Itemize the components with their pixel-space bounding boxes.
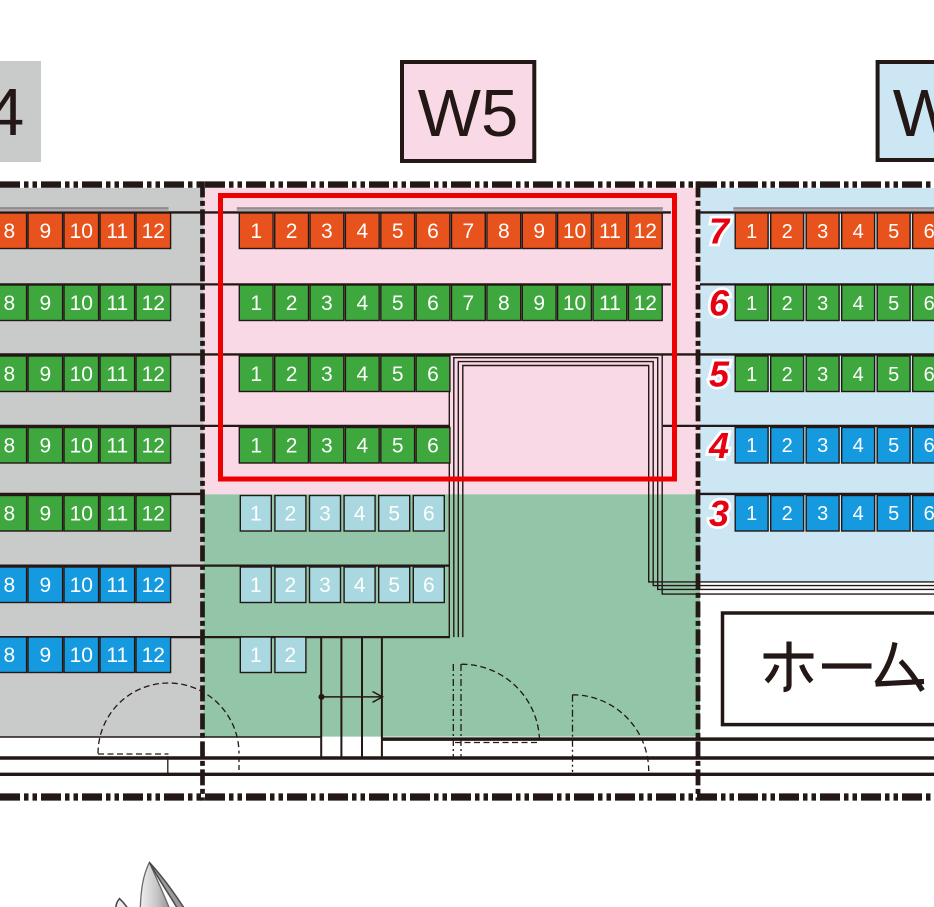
svg-text:11: 11 [106,503,128,526]
svg-text:1: 1 [746,364,757,386]
svg-text:11: 11 [106,644,128,667]
svg-text:8: 8 [3,220,15,243]
svg-text:2: 2 [782,293,793,315]
svg-text:3: 3 [817,364,828,386]
svg-text:2: 2 [782,221,793,243]
svg-text:1: 1 [250,363,262,386]
svg-text:11: 11 [599,220,621,243]
svg-text:12: 12 [634,292,657,315]
svg-text:6: 6 [427,435,439,458]
svg-text:8: 8 [3,435,15,458]
svg-text:11: 11 [106,292,128,315]
svg-text:1: 1 [250,574,262,597]
svg-text:11: 11 [106,363,128,386]
svg-text:12: 12 [142,574,165,597]
svg-text:4: 4 [354,503,366,526]
svg-text:11: 11 [106,220,128,243]
svg-text:5: 5 [388,503,400,526]
svg-text:10: 10 [70,644,93,667]
svg-text:4: 4 [853,364,864,386]
svg-text:W5: W5 [418,76,519,151]
svg-text:5: 5 [392,220,404,243]
svg-text:6: 6 [924,364,934,386]
svg-text:6: 6 [423,574,435,597]
svg-text:9: 9 [39,503,51,526]
svg-text:6: 6 [709,283,730,324]
svg-text:1: 1 [746,221,757,243]
svg-text:2: 2 [782,435,793,457]
svg-text:11: 11 [106,435,128,458]
svg-text:4: 4 [356,363,368,386]
svg-text:9: 9 [39,644,51,667]
svg-text:4: 4 [356,220,368,243]
svg-text:6: 6 [427,363,439,386]
svg-text:6: 6 [427,292,439,315]
svg-text:5: 5 [888,293,899,315]
svg-text:12: 12 [142,644,165,667]
svg-text:1: 1 [250,644,262,667]
svg-text:4: 4 [354,574,366,597]
svg-text:2: 2 [782,364,793,386]
svg-text:7: 7 [709,211,731,252]
svg-text:3: 3 [817,503,828,525]
svg-text:8: 8 [3,503,15,526]
svg-text:3: 3 [321,435,333,458]
svg-text:4: 4 [853,435,864,457]
svg-text:10: 10 [70,503,93,526]
svg-text:10: 10 [70,292,93,315]
svg-text:3: 3 [321,220,333,243]
svg-text:2: 2 [286,435,298,458]
svg-text:12: 12 [142,363,165,386]
svg-text:12: 12 [142,435,165,458]
svg-text:4: 4 [853,503,864,525]
svg-text:5: 5 [888,435,899,457]
svg-text:W4: W4 [0,75,24,150]
svg-text:3: 3 [319,574,331,597]
svg-text:1: 1 [250,220,262,243]
svg-text:3: 3 [319,503,331,526]
svg-text:6: 6 [924,293,934,315]
svg-text:2: 2 [285,574,297,597]
svg-text:8: 8 [498,292,510,315]
svg-text:5: 5 [709,354,730,395]
svg-text:8: 8 [498,220,510,243]
svg-text:9: 9 [533,220,545,243]
svg-text:3: 3 [817,221,828,243]
svg-text:6: 6 [924,221,934,243]
svg-text:5: 5 [888,503,899,525]
svg-text:7: 7 [463,220,475,243]
svg-text:3: 3 [709,493,729,534]
svg-text:4: 4 [356,292,368,315]
svg-text:2: 2 [285,503,297,526]
svg-text:5: 5 [392,363,404,386]
svg-text:10: 10 [70,435,93,458]
svg-text:W6: W6 [893,76,934,151]
svg-text:1: 1 [250,292,262,315]
svg-text:12: 12 [142,220,165,243]
svg-text:4: 4 [853,221,864,243]
svg-text:12: 12 [634,220,657,243]
svg-text:1: 1 [250,435,262,458]
svg-text:10: 10 [563,292,586,315]
svg-text:12: 12 [142,503,165,526]
svg-text:5: 5 [392,292,404,315]
svg-text:4: 4 [853,293,864,315]
svg-text:9: 9 [39,435,51,458]
svg-text:3: 3 [817,293,828,315]
svg-text:10: 10 [70,574,93,597]
svg-text:2: 2 [286,220,298,243]
svg-text:4: 4 [356,435,368,458]
svg-text:3: 3 [321,292,333,315]
svg-text:5: 5 [392,435,404,458]
svg-text:7: 7 [463,292,475,315]
svg-text:9: 9 [533,292,545,315]
svg-text:2: 2 [286,292,298,315]
svg-text:10: 10 [70,220,93,243]
svg-text:1: 1 [746,293,757,315]
svg-text:3: 3 [817,435,828,457]
svg-text:2: 2 [285,644,297,667]
svg-text:9: 9 [39,574,51,597]
svg-text:8: 8 [3,292,15,315]
svg-text:6: 6 [427,220,439,243]
svg-text:10: 10 [563,220,586,243]
svg-text:12: 12 [142,292,165,315]
svg-text:5: 5 [888,364,899,386]
svg-text:9: 9 [39,220,51,243]
svg-text:1: 1 [746,435,757,457]
svg-text:11: 11 [106,574,128,597]
svg-text:9: 9 [39,363,51,386]
svg-text:6: 6 [924,503,934,525]
svg-text:8: 8 [3,644,15,667]
svg-text:9: 9 [39,292,51,315]
svg-text:6: 6 [924,435,934,457]
svg-text:8: 8 [3,363,15,386]
svg-text:5: 5 [388,574,400,597]
svg-text:1: 1 [746,503,757,525]
svg-text:6: 6 [423,503,435,526]
svg-text:5: 5 [888,221,899,243]
svg-text:2: 2 [286,363,298,386]
svg-text:4: 4 [708,425,729,466]
svg-text:11: 11 [599,292,621,315]
svg-text:3: 3 [321,363,333,386]
svg-text:1: 1 [250,503,262,526]
svg-text:10: 10 [70,363,93,386]
svg-text:8: 8 [3,574,15,597]
svg-text:2: 2 [782,503,793,525]
